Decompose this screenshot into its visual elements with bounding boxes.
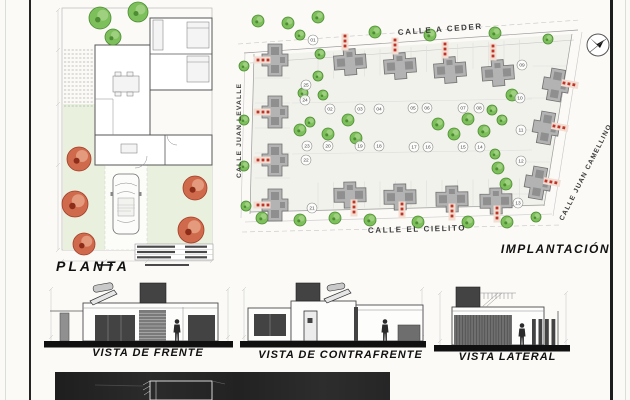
garden-trees (89, 2, 148, 45)
svg-text:13: 13 (515, 201, 521, 207)
street-name-right: CALLE JUAN CAMELLINO (559, 123, 614, 222)
sheet-margin-line (5, 0, 6, 400)
elevation-back-title: VISTA DE CONTRAFRENTE (248, 349, 433, 361)
svg-text:05: 05 (410, 106, 416, 112)
svg-text:11: 11 (519, 128, 524, 134)
svg-text:16: 16 (425, 145, 431, 151)
svg-text:04: 04 (376, 107, 382, 113)
dining-table (113, 76, 139, 92)
elevation-front-title: VISTA DE FRENTE (68, 347, 228, 359)
night-render-photo (55, 372, 390, 400)
svg-text:12: 12 (518, 159, 524, 165)
svg-text:17: 17 (411, 145, 417, 151)
svg-text:18: 18 (376, 144, 382, 150)
street-name-top: CALLE A CEDER (397, 22, 483, 37)
north-arrow-icon (587, 34, 609, 56)
svg-text:03: 03 (357, 107, 363, 113)
svg-text:01: 01 (310, 38, 316, 44)
drawing-sheet: PLANTA 010203040506070809101112131415161… (0, 0, 630, 400)
street-name-left: CALLE JUAN LEVALLE (236, 83, 243, 178)
svg-text:23: 23 (304, 144, 310, 150)
floor-plan-title: PLANTA (56, 258, 130, 274)
floor-plan-drawing (35, 4, 225, 280)
svg-text:02: 02 (327, 107, 333, 113)
svg-text:22: 22 (303, 158, 309, 164)
svg-text:15: 15 (460, 145, 466, 151)
svg-text:06: 06 (424, 106, 430, 112)
site-plan-drawing: 0102030405060708091011121314151617181920… (230, 8, 615, 260)
ground-line (240, 341, 426, 348)
sheet-border-left (29, 0, 31, 400)
street-name-bottom: CALLE EL CIELITO (368, 223, 466, 235)
elevation-side-title: VISTA LATERAL (445, 351, 570, 363)
svg-text:14: 14 (477, 145, 483, 151)
sheet-border-right (610, 0, 613, 400)
sheet-margin-line (625, 0, 626, 400)
car-icon (111, 174, 142, 234)
svg-text:24: 24 (302, 98, 308, 104)
svg-text:21: 21 (309, 206, 315, 212)
svg-text:08: 08 (476, 106, 482, 112)
svg-text:25: 25 (303, 83, 309, 89)
site-plan-title: IMPLANTACIÓN (462, 242, 610, 256)
render-wireframe (55, 372, 390, 400)
svg-text:10: 10 (517, 96, 523, 102)
svg-text:09: 09 (519, 63, 525, 69)
svg-text:20: 20 (325, 144, 331, 150)
roof-railing (484, 293, 512, 299)
svg-text:19: 19 (357, 144, 363, 150)
svg-text:07: 07 (460, 106, 466, 112)
deck-hatch (64, 50, 94, 106)
